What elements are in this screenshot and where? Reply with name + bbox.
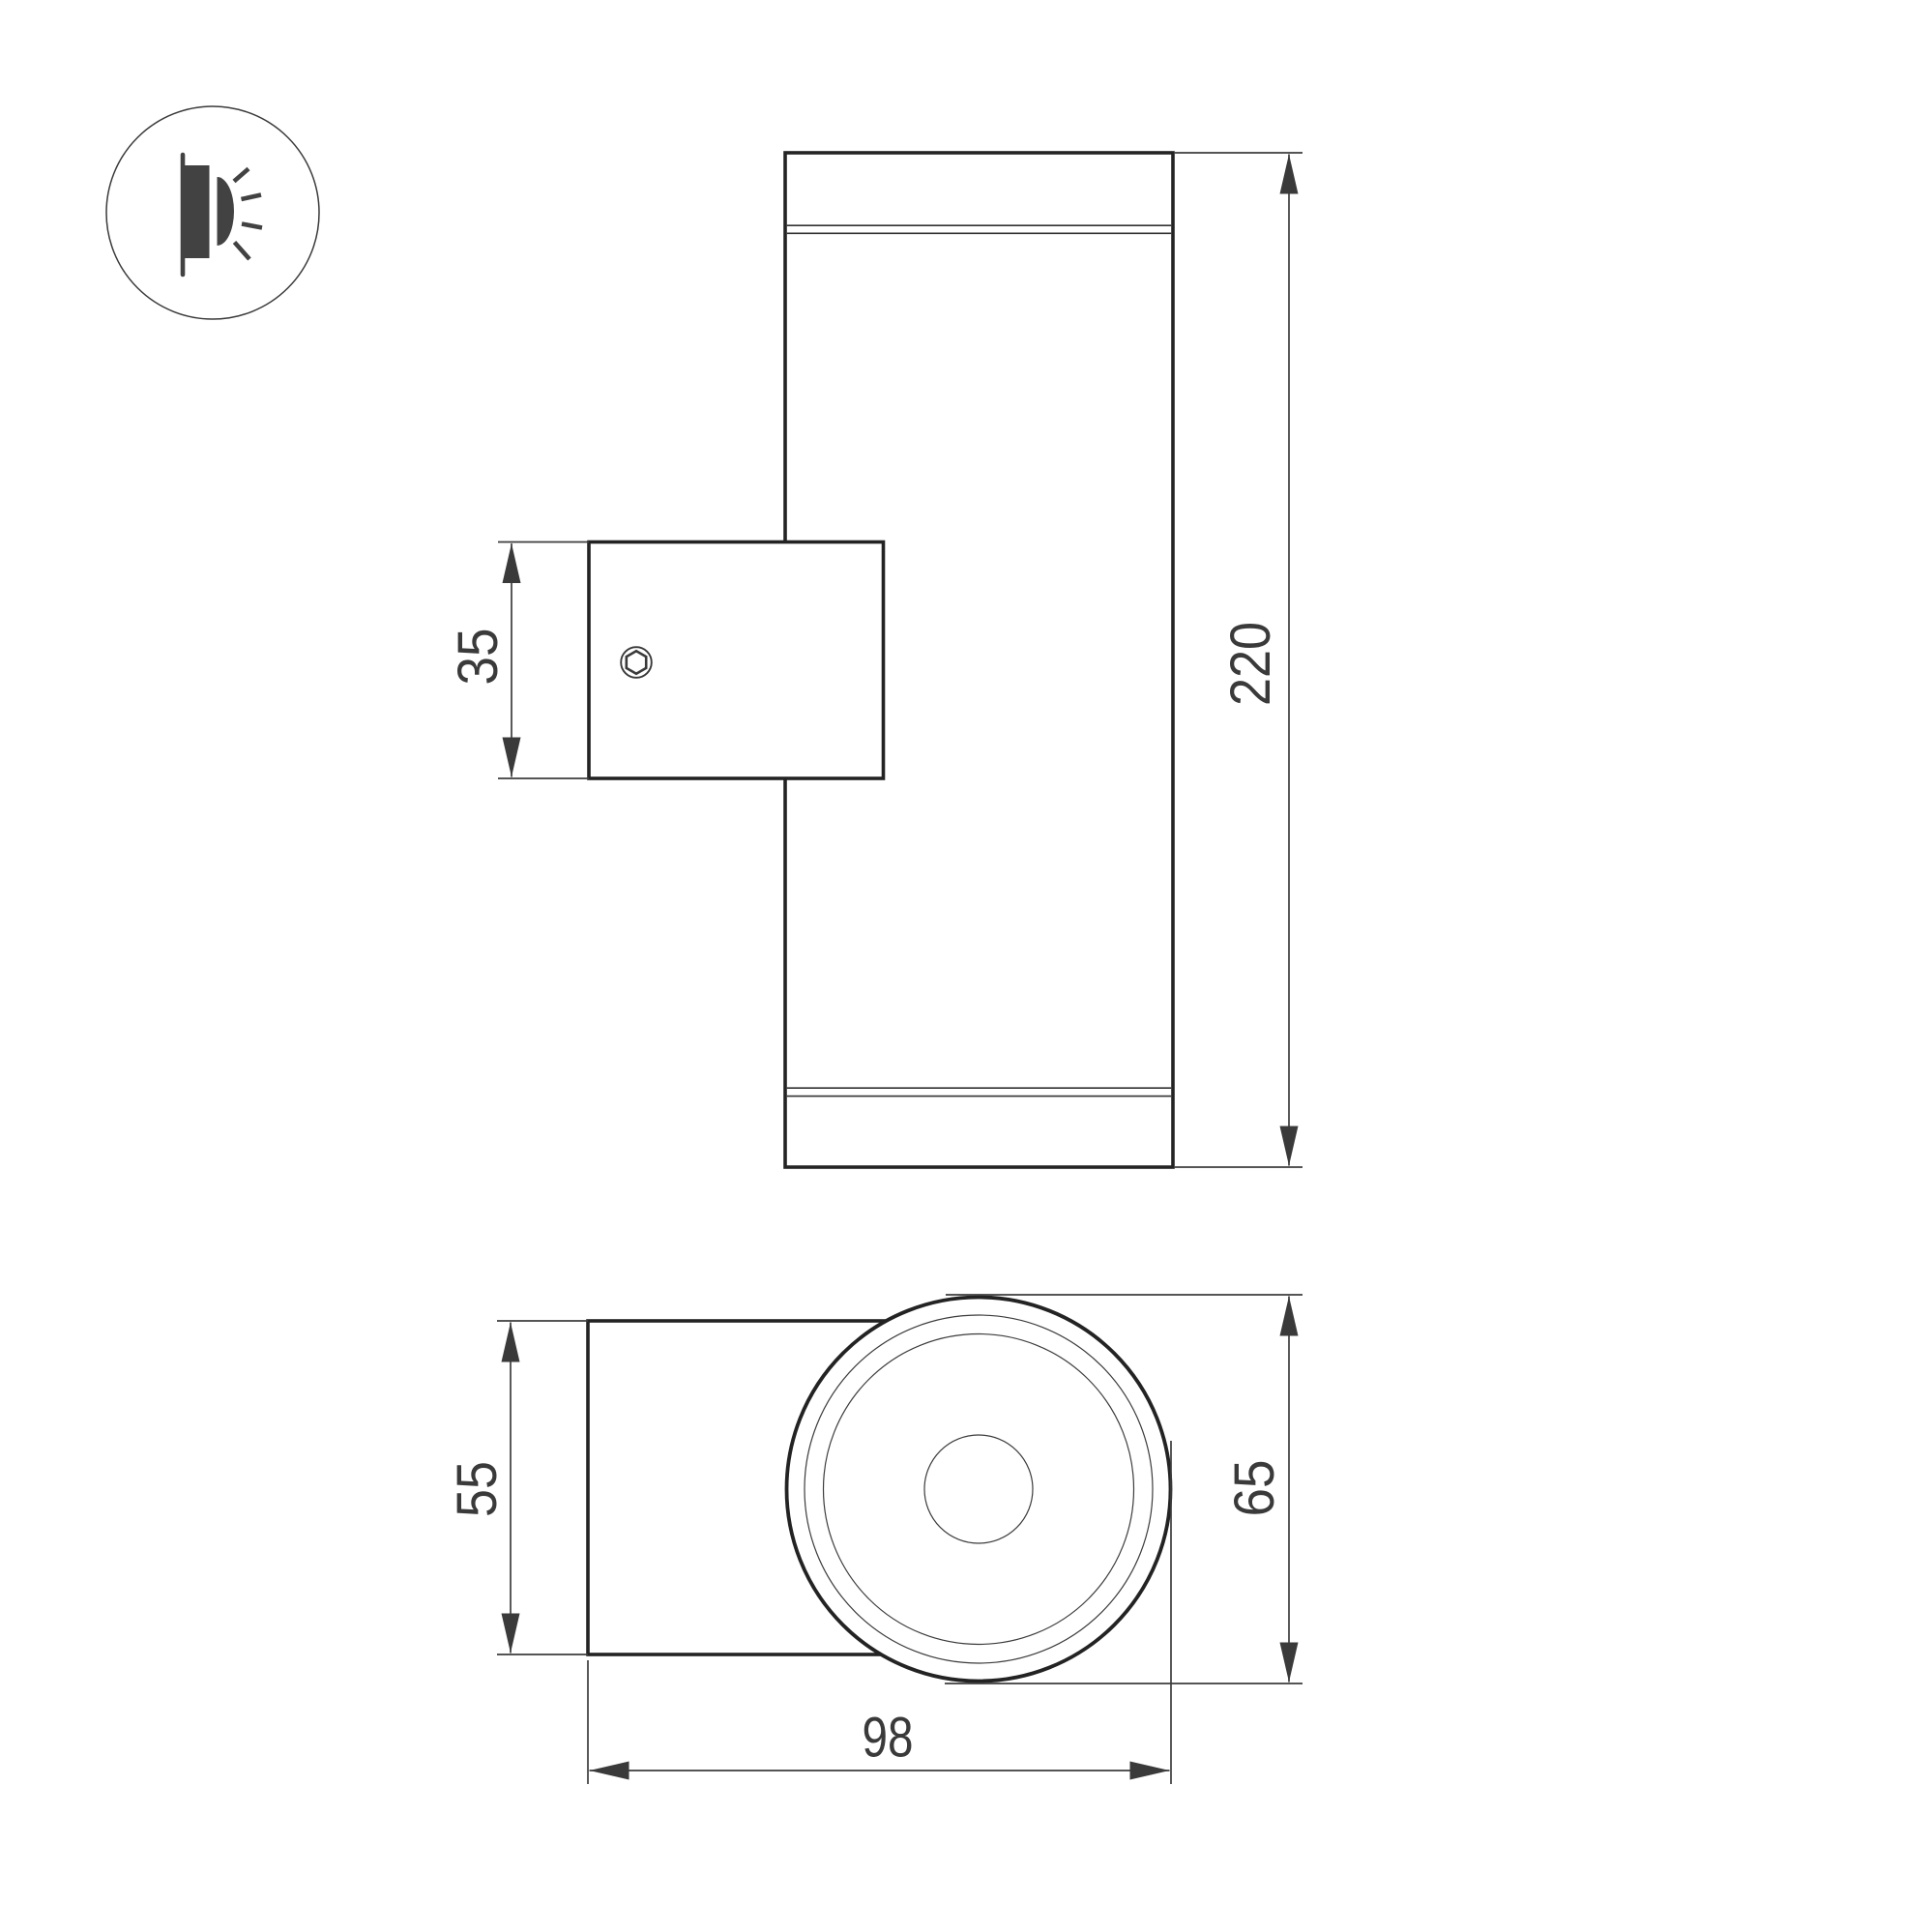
- svg-text:98: 98: [863, 1707, 914, 1770]
- svg-text:55: 55: [446, 1461, 509, 1517]
- svg-text:220: 220: [1219, 622, 1282, 706]
- svg-text:35: 35: [447, 629, 510, 686]
- svg-text:65: 65: [1223, 1460, 1286, 1517]
